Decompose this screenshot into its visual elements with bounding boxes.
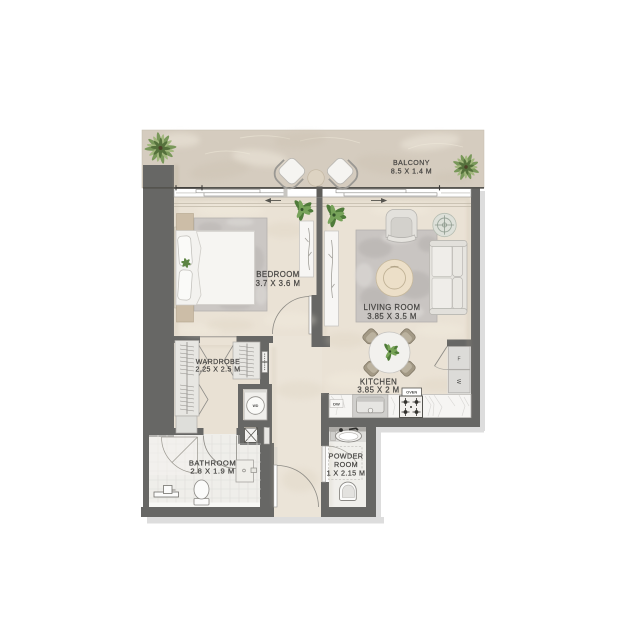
- svg-text:BALCONY: BALCONY: [393, 160, 430, 167]
- svg-text:2.25 X 2.5 M: 2.25 X 2.5 M: [195, 367, 240, 374]
- svg-text:3.85 X 2 M: 3.85 X 2 M: [357, 386, 399, 395]
- svg-text:DW: DW: [333, 401, 340, 406]
- svg-text:2.8 X 1.9 M: 2.8 X 1.9 M: [190, 467, 234, 476]
- svg-text:F: F: [457, 357, 460, 363]
- svg-text:WARDROBE: WARDROBE: [196, 359, 241, 366]
- svg-text:WD: WD: [253, 404, 259, 408]
- svg-text:3.7 X 3.6 M: 3.7 X 3.6 M: [256, 279, 301, 288]
- svg-text:OVEN: OVEN: [406, 390, 417, 395]
- svg-text:BEDROOM: BEDROOM: [256, 270, 299, 279]
- svg-text:3.85 X 3.5 M: 3.85 X 3.5 M: [367, 312, 417, 321]
- svg-text:8.5 X 1.4 M: 8.5 X 1.4 M: [391, 169, 432, 176]
- svg-text:LIVING ROOM: LIVING ROOM: [364, 303, 421, 312]
- svg-text:W: W: [455, 379, 461, 384]
- svg-text:1 X 2.15 M: 1 X 2.15 M: [327, 469, 366, 478]
